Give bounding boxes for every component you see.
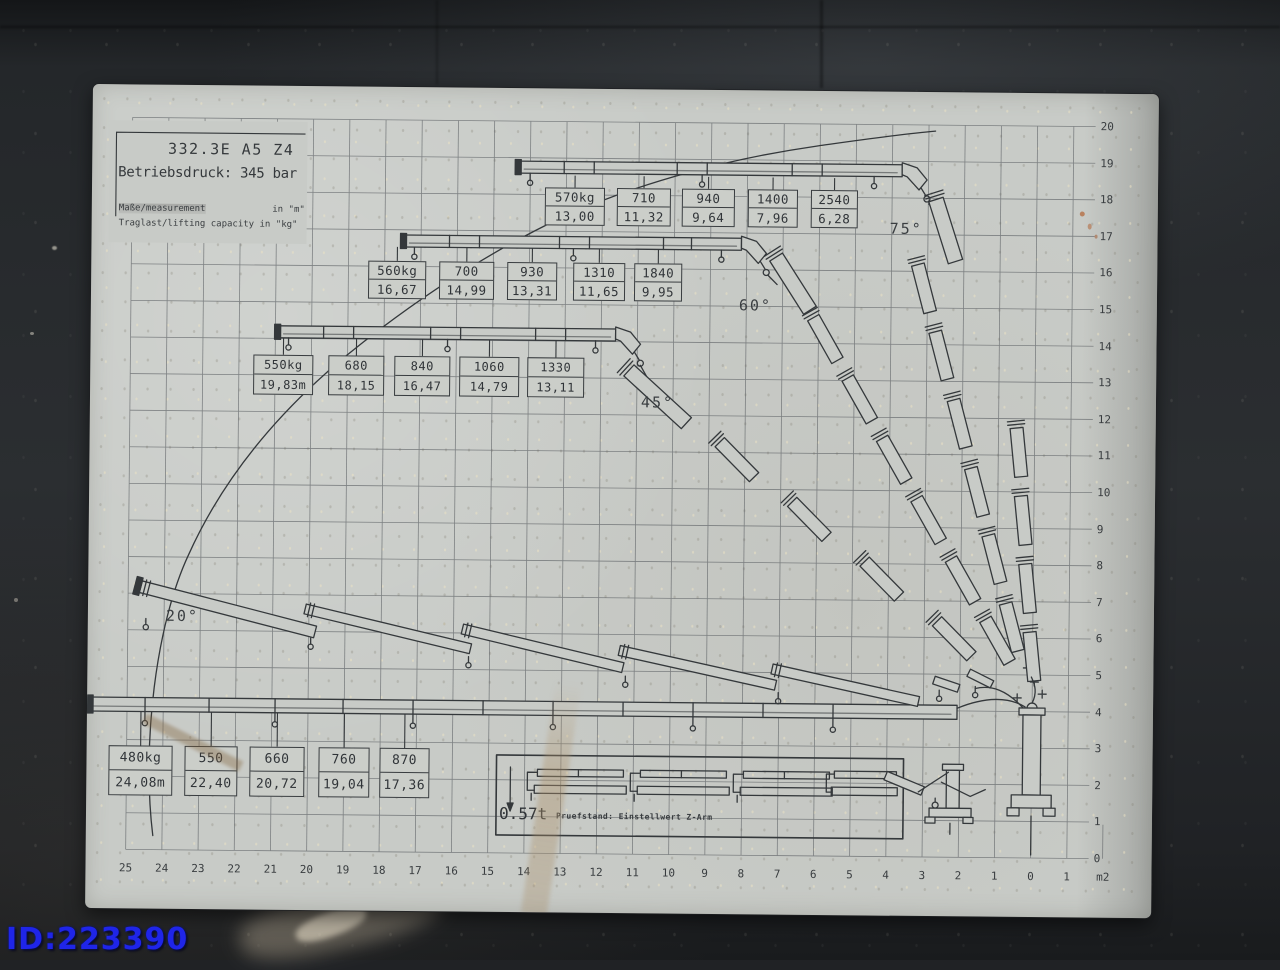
boom-segment-glyph [1007,420,1029,477]
capacity-kg-value: 710 [618,189,670,207]
hook-icon [623,676,628,687]
boom-segment-glyph [908,256,938,314]
boom-segment-glyph [926,610,977,662]
boom-segment-glyph [961,459,991,517]
capacity-box: 480kg24,08m [108,745,172,796]
right-axis-label: 15 [1099,303,1112,316]
hook-icon [593,341,598,353]
capacity-kg-value: 870 [380,749,428,773]
hook-icon [142,712,147,726]
capacity-kg-value: 550 [185,747,236,771]
right-axis-label: 12 [1098,413,1111,426]
capacity-reach-value: 9,95 [635,282,681,300]
background-speck [52,246,57,250]
right-axis-label: 20 [1101,120,1114,133]
boom-segment-glyph [1020,624,1042,681]
capacity-reach-value: 13,31 [508,281,556,299]
bottom-axis-label: 5 [846,868,853,881]
bottom-axis-label: 6 [810,868,817,881]
hook-icon [937,690,942,701]
capacity-reach-value: 20,72 [250,772,303,797]
right-axis-label: 9 [1097,523,1104,536]
capacity-kg-value: 1310 [574,264,624,282]
boom-segment-glyph [618,644,777,692]
boom-segment-glyph [925,323,955,381]
capacity-box: 66020,72 [249,747,304,798]
rust-speck [1080,211,1085,216]
capacity-box: 25406,28 [811,190,858,228]
bottom-axis-label: 25 [119,861,132,874]
measurement-note: Maße/measurement in "m" [119,203,305,215]
measurement-unit-text: in "m" [272,205,305,215]
capacity-reach-value: 16,47 [395,376,449,396]
rust-speck [1095,235,1098,239]
right-axis-label: 14 [1098,340,1111,353]
capacity-box: 70014,99 [439,261,494,300]
capacity-box: 9409,64 [682,189,735,228]
capacity-kg-value: 1330 [528,358,583,378]
bottom-axis-label: 11 [626,866,639,879]
capacity-kg-value: 760 [319,748,368,772]
bottom-axis-label: 1 [991,870,998,883]
bottom-axis-label: 23 [191,862,204,875]
right-axis-label: 16 [1099,267,1112,280]
bottom-axis-label: 17 [408,864,421,877]
bottom-axis-label: 19 [336,863,349,876]
bottom-axis-label: 9 [701,867,708,880]
hook-icon [272,713,277,727]
capacity-kg-value: 840 [395,357,449,377]
measurement-note-text: Maße/measurement [119,203,206,214]
right-axis-label: 19 [1100,157,1113,170]
right-axis-label: 11 [1097,450,1110,463]
bottom-axis-label: 13 [553,865,566,878]
capacity-kg-value: 680 [329,356,383,376]
inset-caption: Pruefstand: Einstellwert Z-Arm [556,811,713,822]
right-axis-label: 7 [1096,596,1103,609]
background-speck [14,598,18,602]
bottom-axis-label: 20 [300,863,313,876]
hook-icon [143,619,148,630]
hook-icon [410,714,415,728]
right-axis-label: 17 [1100,230,1113,243]
capacity-kg-value: 1060 [460,358,518,378]
capacity-reach-value: 13,11 [528,377,583,397]
capacity-reach-value: 14,79 [460,377,518,397]
transport-position-drawing [496,755,986,840]
capacity-kg-value: 660 [250,748,303,773]
capacity-reach-value: 13,00 [546,206,604,225]
capacity-kg-value: 1400 [749,190,797,208]
capacity-box: 560kg16,67 [368,261,426,300]
hook-icon [286,338,291,350]
capacity-note: Traglast/lifting capacity in "kg" [119,218,298,230]
boom-segment-glyph [906,488,948,545]
right-axis-label: 0 [1094,852,1101,865]
capacity-box: 55022,40 [184,746,237,797]
hook-icon [830,718,835,732]
capacity-reach-value: 14,99 [440,280,493,299]
capacity-kg-value: 700 [440,262,493,281]
id-watermark: ID:223390 [6,922,188,957]
right-axis-label: 2 [1094,779,1101,792]
bottom-axis-label: 21 [264,863,277,876]
capacity-reach-value: 19,83m [254,375,312,395]
boom-segment-glyph [709,431,760,483]
capacity-box: 550kg19,83m [253,355,313,396]
capacity-reach-value: 9,64 [683,208,734,226]
boom-segment-glyph [304,602,473,655]
right-axis-label: 3 [1095,742,1102,755]
boom-segment-glyph [944,391,974,449]
right-axis-label: 4 [1095,706,1102,719]
bottom-axis-label: 14 [517,865,530,878]
rust-speck [1088,224,1092,230]
capacity-reach-value: 11,65 [574,282,624,300]
boom-segment-glyph [781,491,832,543]
capacity-reach-value: 7,96 [749,208,797,226]
hook-icon [550,715,555,729]
panel-seam [0,26,1280,28]
bottom-axis-label: 16 [445,864,458,877]
boom-segment-glyph [925,190,965,264]
boom-segment-glyph [978,526,1008,584]
boom-angle-label: 20° [166,607,199,625]
bottom-axis-label: 4 [882,869,889,882]
bottom-axis-label: 2 [955,869,962,882]
capacity-box: 93013,31 [507,262,557,300]
panel-groove [436,0,438,84]
capacity-reach-value: 17,36 [380,773,428,797]
right-axis-label: 6 [1096,633,1103,646]
capacity-kg-value: 480kg [109,746,171,771]
boom-segment-glyph [771,662,920,708]
hook-icon [699,175,704,187]
plus-mark [1038,690,1046,698]
boom-segment-glyph [854,551,905,603]
capacity-kg-value: 560kg [369,262,425,281]
capacity-box: 570kg13,00 [545,187,605,226]
hook-icon [775,693,780,704]
right-axis-label: 10 [1097,486,1110,499]
bottom-axis-label: 22 [227,862,240,875]
hook-icon [719,250,724,262]
hook-icon [445,339,450,351]
capacity-kg-value: 1840 [635,264,681,282]
bottom-axis-label: 10 [662,866,675,879]
bottom-axis-label: 18 [372,864,385,877]
capacity-reach-value: 11,32 [618,207,670,225]
hook-icon [690,717,695,731]
capacity-reach-value: 16,67 [369,280,425,299]
capacity-reach-value: 6,28 [812,209,857,227]
right-axis-label: 8 [1096,559,1103,572]
capacity-reach-value: 24,08m [109,770,171,795]
bottom-axis-label: 0 [1027,870,1034,883]
capacity-box: 71011,32 [617,188,671,227]
capacity-kg-value: 570kg [546,188,604,207]
boom-segment-glyph [1012,488,1034,545]
right-axis-label: 1 [1094,816,1101,829]
capacity-kg-value: 930 [508,263,556,281]
bottom-axis-label: 8 [737,867,744,880]
capacity-reach-value: 22,40 [185,771,236,795]
boom-segment-glyph [461,622,625,674]
hook-icon [871,176,876,188]
capacity-reach-value: 19,04 [319,772,368,796]
bottom-boom [89,697,957,719]
bottom-axis-label: m2 [1096,871,1109,884]
capacity-kg-value: 940 [683,190,734,208]
boom-angle-label: 60° [739,296,772,314]
bottom-axis-label: 3 [918,869,925,882]
boom-segment-glyph [837,368,879,425]
model-designation: 332.3E A5 Z4 [122,139,294,159]
capacity-box: 18409,95 [634,263,682,301]
boom-segment-glyph [764,246,818,315]
operating-pressure: Betriebsdruck: 345 bar [118,164,297,182]
capacity-box: 133013,11 [527,357,584,398]
right-axis-label: 18 [1100,193,1113,206]
boom-segment-glyph [802,307,844,364]
capacity-box: 76019,04 [318,747,369,797]
right-axis-label: 5 [1095,669,1102,682]
capacity-box: 84016,47 [394,356,450,397]
hook-icon [571,249,576,261]
background-speck [30,332,34,335]
boom-angle-label: 75° [890,220,923,238]
capacity-box: 14007,96 [748,189,798,227]
capacity-box: 106014,79 [459,357,519,398]
capacity-box: 131011,65 [573,263,625,301]
boom-angle-label: 45° [641,393,674,411]
right-axis-label: 13 [1098,376,1111,389]
crane-base [974,676,1057,855]
load-chart-plate: 332.3E A5 Z4 Betriebsdruck: 345 bar Maße… [85,84,1159,918]
capacity-reach-value: 18,15 [329,375,383,395]
plus-mark [1013,694,1021,702]
hook-icon [466,657,471,668]
bottom-axis-label: 24 [155,862,168,875]
hook-icon [412,247,417,259]
bottom-axis-label: 15 [481,865,494,878]
capacity-kg-value: 550kg [254,356,312,376]
capacity-box: 68018,15 [328,355,384,396]
boom-segment-glyph [871,428,913,485]
panel-groove [820,0,823,88]
inset-weight: 0.57t [499,804,547,823]
bottom-axis-label: 12 [589,866,602,879]
bottom-axis-label: 7 [774,868,781,881]
capacity-kg-value: 2540 [812,191,857,209]
bottom-axis-label: 1 [1063,870,1070,883]
capacity-box: 87017,36 [379,748,429,798]
photo-background: 332.3E A5 Z4 Betriebsdruck: 345 bar Maße… [0,0,1280,960]
